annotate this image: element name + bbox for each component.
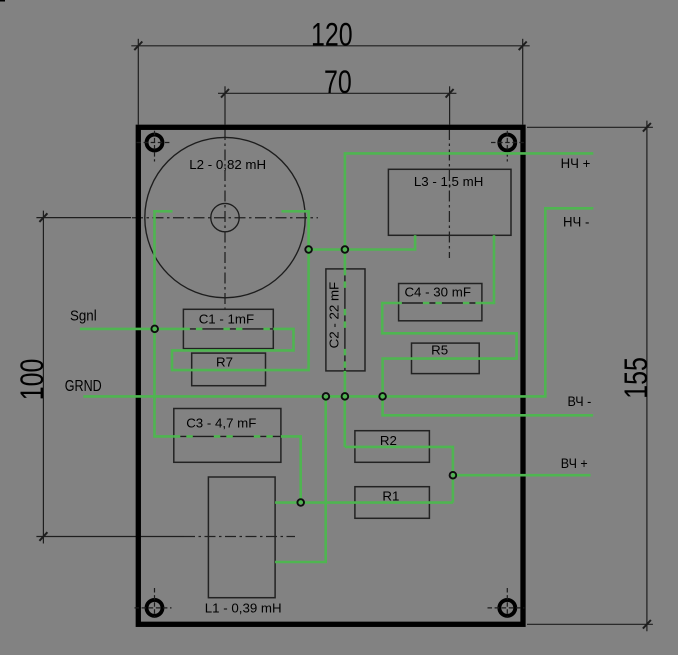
svg-text:R1: R1 xyxy=(382,489,399,504)
svg-text:120: 120 xyxy=(311,17,353,53)
svg-text:Sgnl: Sgnl xyxy=(70,307,97,324)
svg-text:R2: R2 xyxy=(380,433,397,448)
svg-text:100: 100 xyxy=(15,359,51,401)
svg-text:GRND: GRND xyxy=(65,377,102,394)
svg-text:C1 - 1mF: C1 - 1mF xyxy=(199,311,254,326)
svg-text:R7: R7 xyxy=(216,354,233,369)
svg-text:ВЧ +: ВЧ + xyxy=(561,456,588,472)
svg-text:R5: R5 xyxy=(431,343,448,358)
svg-text:ВЧ -: ВЧ - xyxy=(568,394,592,410)
svg-text:НЧ -: НЧ - xyxy=(563,214,589,229)
svg-text:155: 155 xyxy=(619,357,655,399)
svg-text:C3 - 4,7 mF: C3 - 4,7 mF xyxy=(186,416,256,431)
svg-text:L2 - 0,82 mH: L2 - 0,82 mH xyxy=(189,157,266,172)
svg-text:НЧ +: НЧ + xyxy=(561,156,591,171)
svg-text:70: 70 xyxy=(324,65,352,101)
svg-text:C4 - 30 mF: C4 - 30 mF xyxy=(404,284,471,299)
svg-text:C2 - 22 mF: C2 - 22 mF xyxy=(326,282,341,349)
svg-text:L1 - 0,39 mH: L1 - 0,39 mH xyxy=(205,600,282,615)
svg-text:L3 - 1,5 mH: L3 - 1,5 mH xyxy=(414,174,483,189)
